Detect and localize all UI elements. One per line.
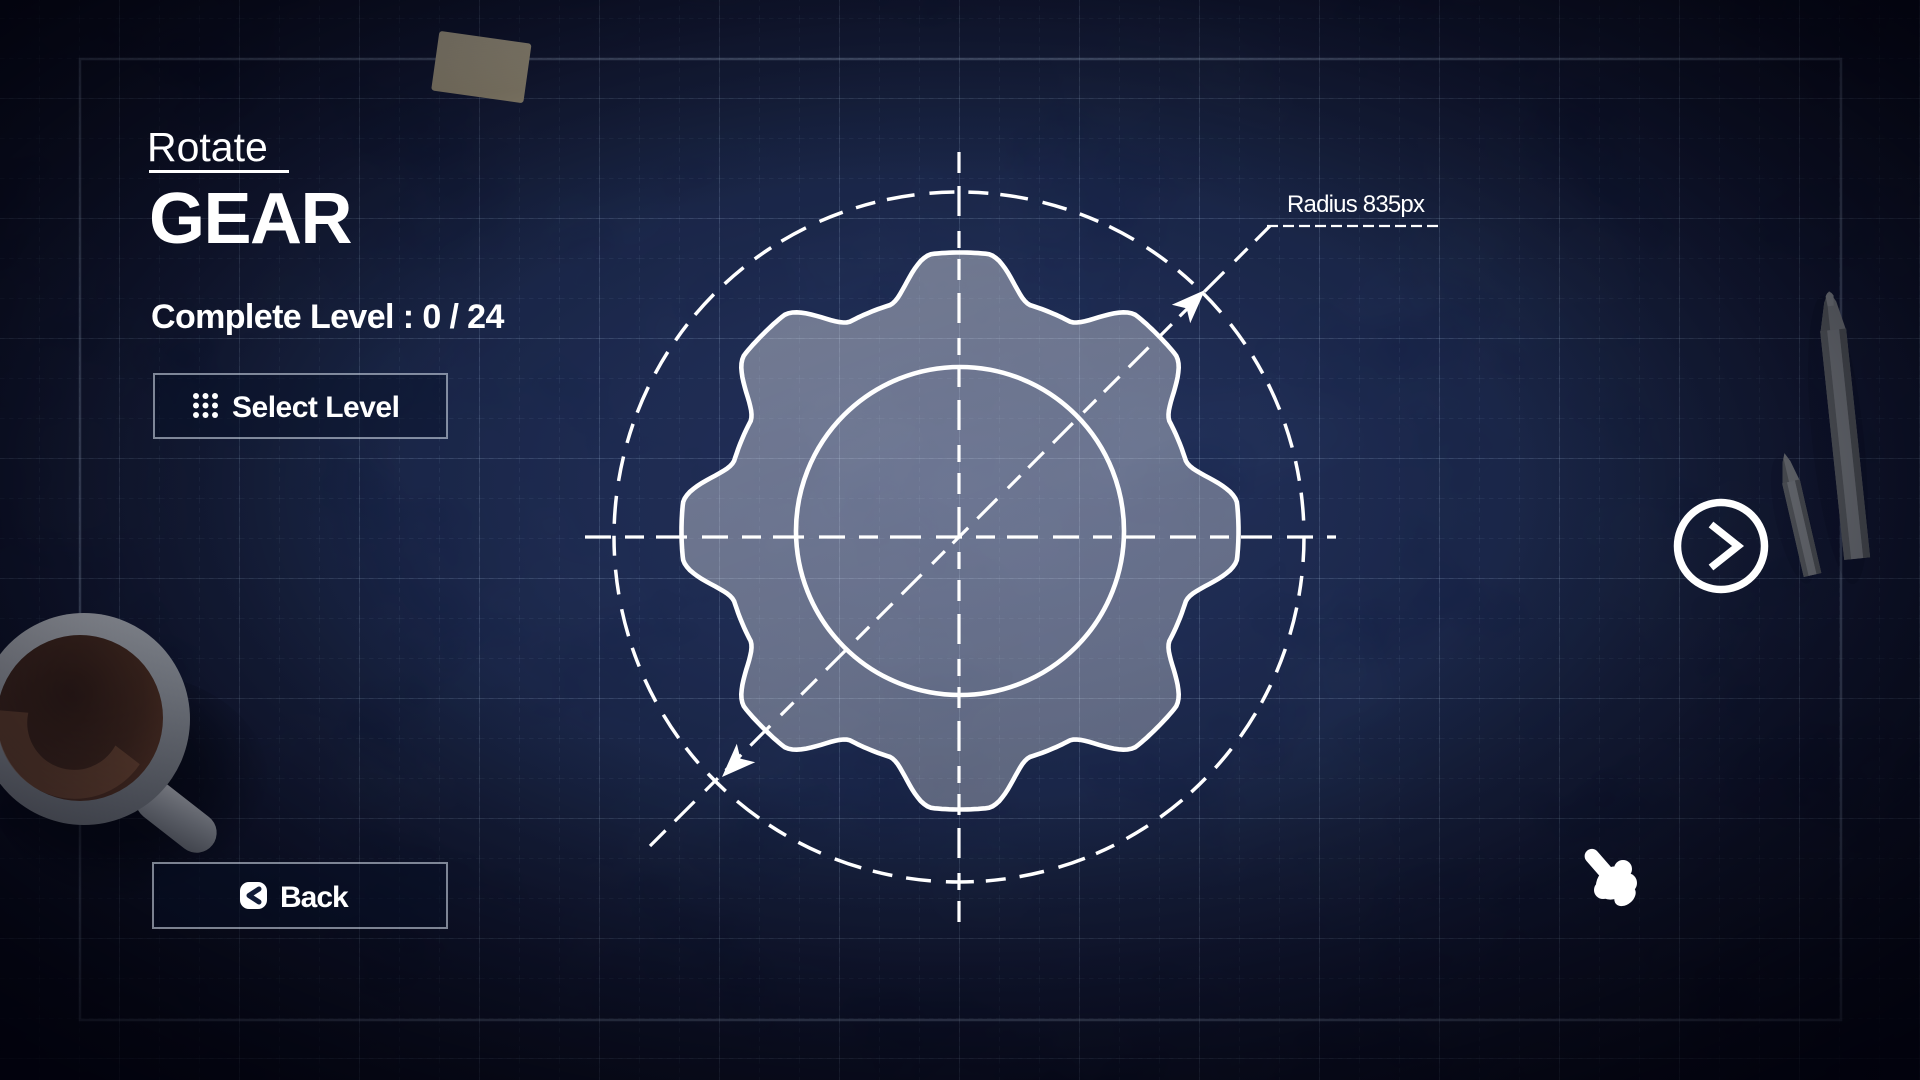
svg-text:GEAR: GEAR (149, 179, 352, 259)
svg-text:Rotate: Rotate (147, 124, 268, 170)
svg-text:Radius 835px: Radius 835px (1287, 191, 1425, 218)
svg-text:Complete Level : 0 / 24: Complete Level : 0 / 24 (151, 298, 504, 336)
svg-text:Select Level: Select Level (232, 391, 399, 424)
svg-text:Back: Back (280, 881, 349, 914)
